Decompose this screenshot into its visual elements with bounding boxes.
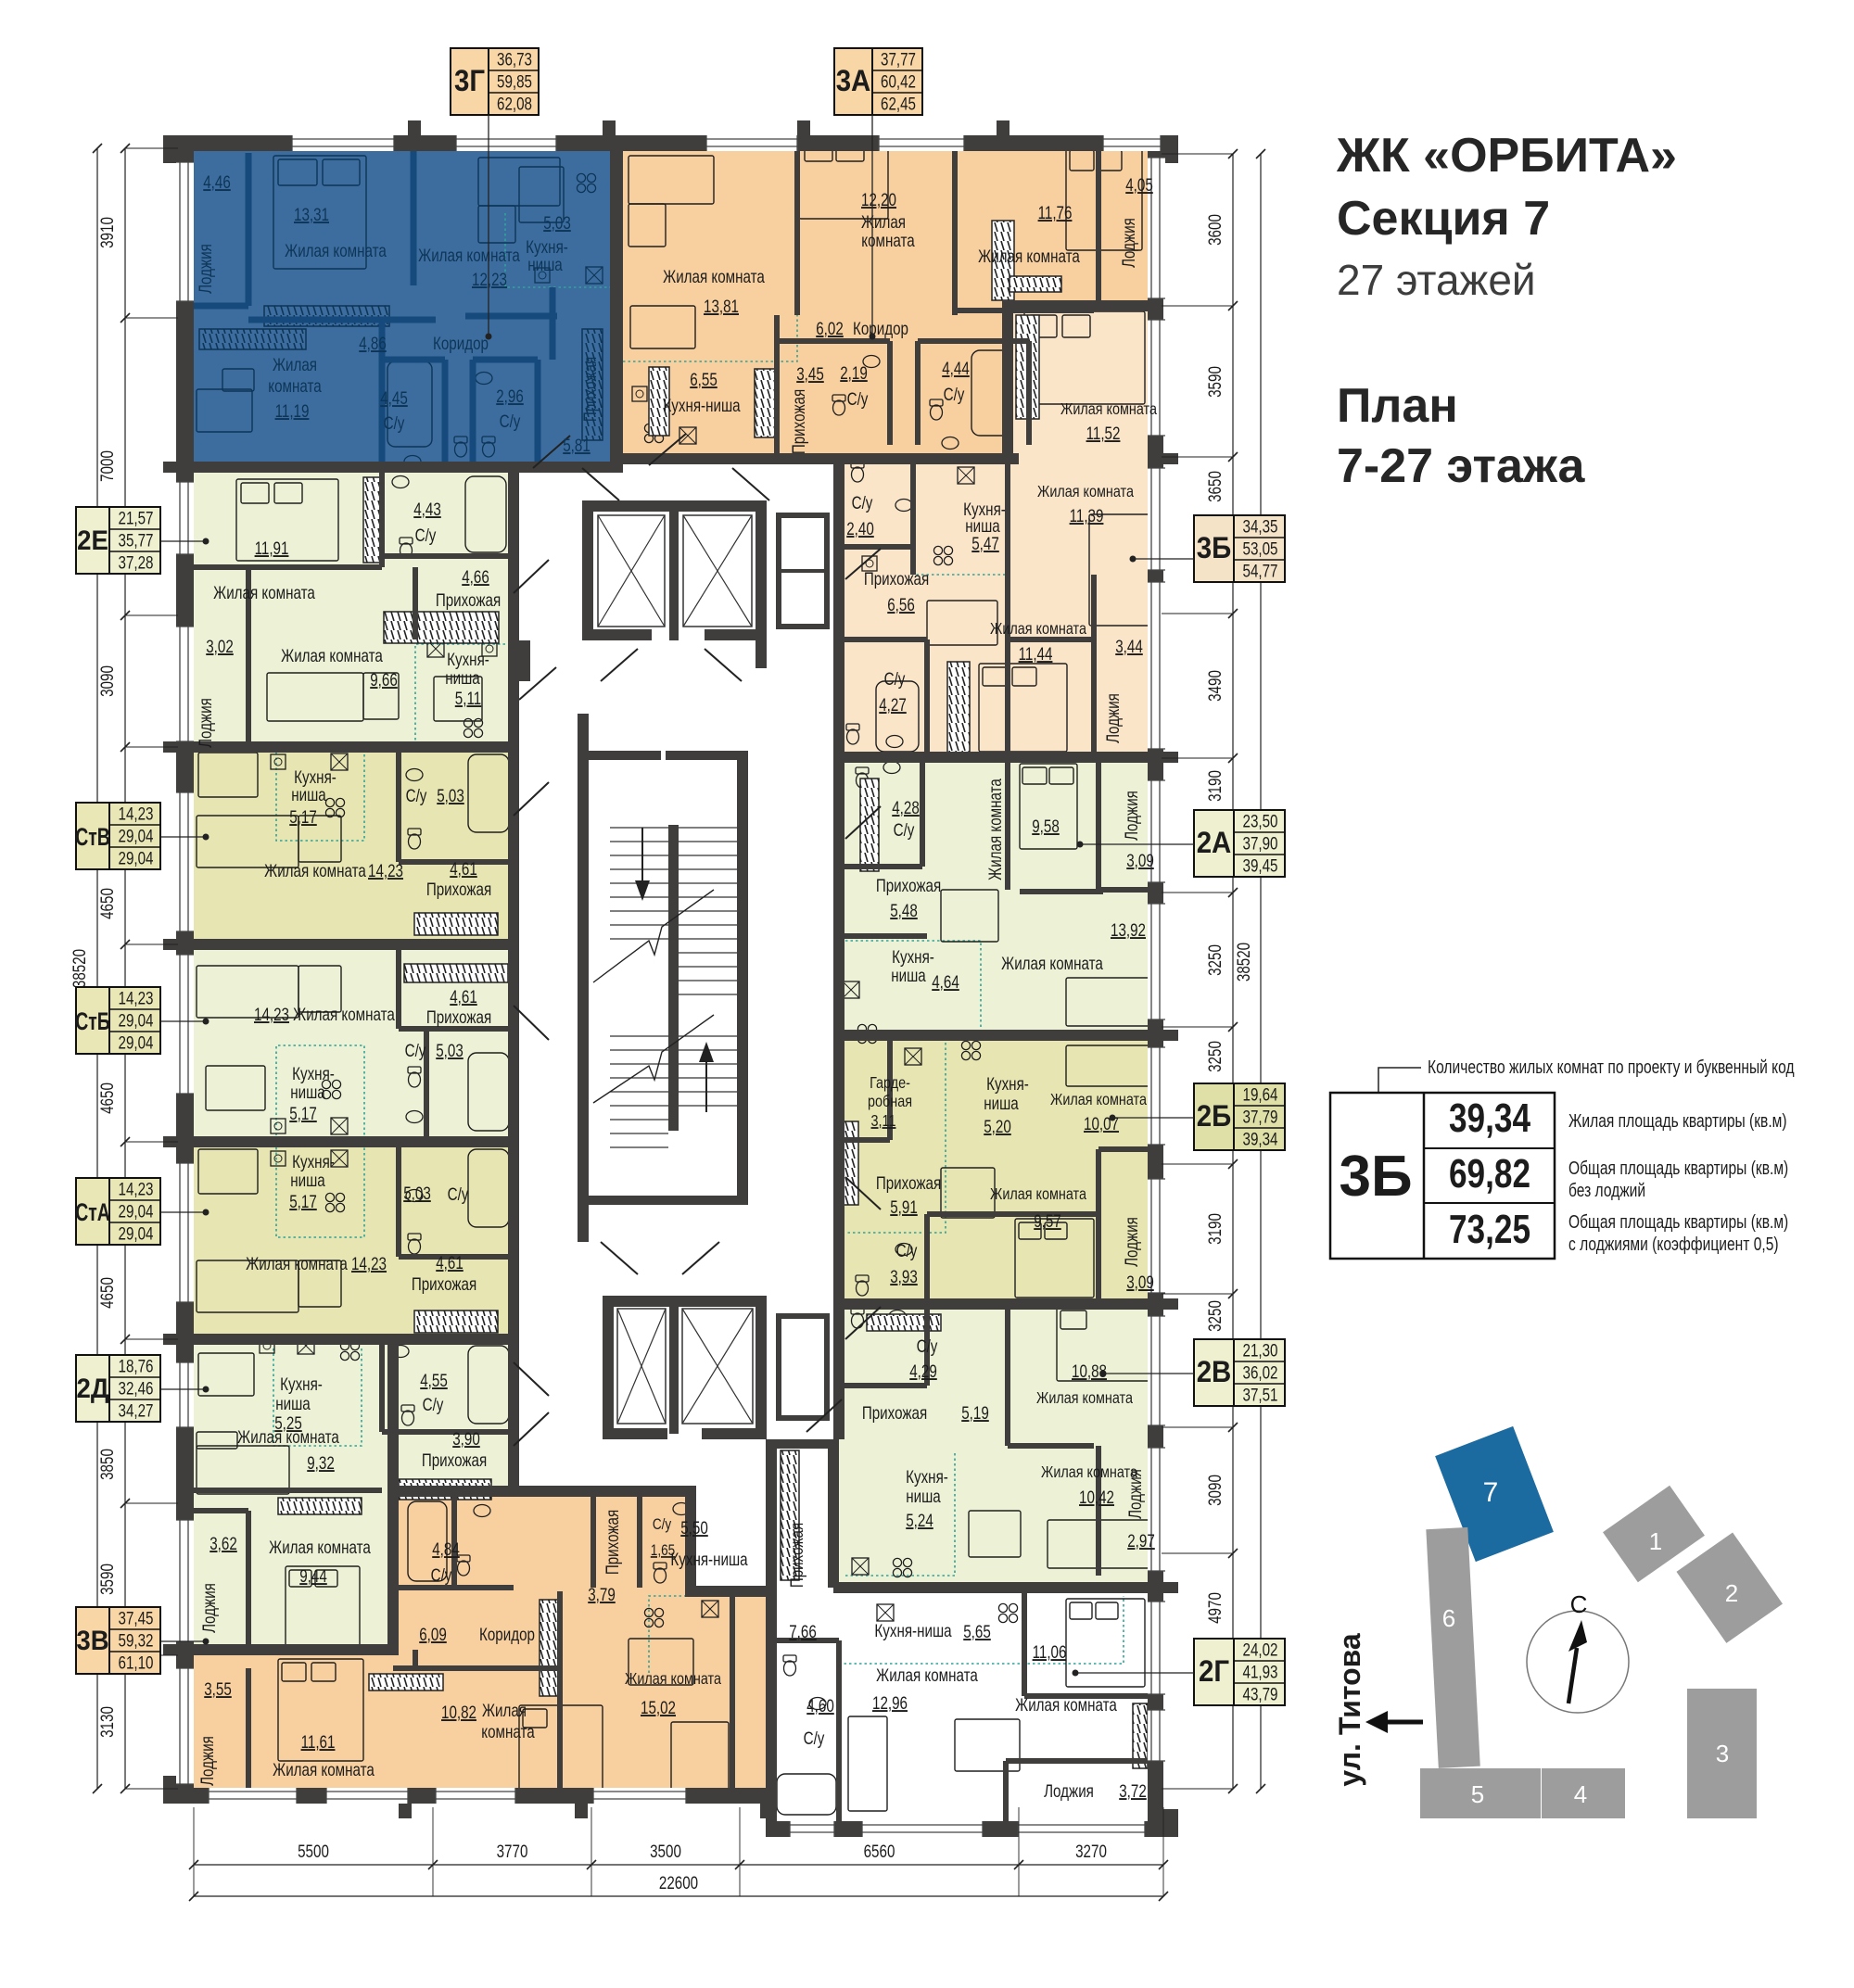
svg-text:4,86: 4,86	[359, 333, 387, 353]
svg-text:43,79: 43,79	[1242, 1684, 1277, 1704]
svg-text:Коридор: Коридор	[433, 333, 489, 353]
svg-text:13,81: 13,81	[704, 296, 739, 316]
svg-text:комната: комната	[481, 1721, 535, 1741]
svg-text:Коридор: Коридор	[479, 1624, 535, 1644]
svg-text:4,55: 4,55	[420, 1370, 448, 1390]
svg-text:4: 4	[1574, 1780, 1587, 1808]
svg-text:11,76: 11,76	[1038, 202, 1073, 222]
svg-text:с лоджиями (коэффициент 0,5): с лоджиями (коэффициент 0,5)	[1568, 1234, 1779, 1254]
svg-text:ниша: ниша	[906, 1486, 941, 1506]
svg-text:3Б: 3Б	[1197, 531, 1232, 564]
svg-text:Прихожая: Прихожая	[862, 1402, 927, 1423]
svg-text:4,64: 4,64	[932, 971, 959, 992]
svg-text:29,04: 29,04	[118, 1032, 153, 1053]
svg-text:Прихожая: Прихожая	[422, 1450, 487, 1470]
svg-text:7: 7	[1483, 1477, 1499, 1508]
svg-text:С/у: С/у	[500, 411, 521, 431]
svg-text:Прихожая: Прихожая	[426, 879, 491, 899]
svg-text:3590: 3590	[1204, 366, 1225, 398]
svg-text:62,45: 62,45	[881, 94, 916, 114]
svg-text:С/у: С/у	[917, 1336, 938, 1356]
svg-text:5,03: 5,03	[543, 212, 571, 233]
svg-text:Жилая: Жилая	[273, 354, 317, 374]
svg-text:3Б: 3Б	[1339, 1145, 1412, 1209]
svg-text:5,03: 5,03	[436, 1040, 463, 1060]
svg-text:3850: 3850	[96, 1449, 117, 1480]
svg-text:4,45: 4,45	[380, 387, 408, 408]
svg-text:13,92: 13,92	[1111, 919, 1146, 940]
svg-text:37,79: 37,79	[1242, 1107, 1277, 1127]
svg-text:Кухня-: Кухня-	[892, 946, 934, 967]
svg-text:21,57: 21,57	[118, 508, 153, 528]
svg-text:3,45: 3,45	[796, 363, 824, 384]
svg-text:15,02: 15,02	[641, 1697, 676, 1717]
svg-text:37,77: 37,77	[881, 49, 916, 70]
svg-text:ул. Титова: ул. Титова	[1333, 1633, 1366, 1787]
svg-text:6,56: 6,56	[887, 594, 915, 614]
svg-text:Жилая комната: Жилая комната	[1060, 400, 1158, 419]
svg-text:3,11: 3,11	[871, 1112, 896, 1131]
svg-text:Лоджия: Лоджия	[1044, 1780, 1094, 1801]
svg-text:Жилая: Жилая	[482, 1700, 527, 1720]
svg-text:Прихожая: Прихожая	[864, 568, 929, 589]
svg-text:ниша: ниша	[275, 1393, 311, 1413]
svg-text:Лоджия: Лоджия	[1121, 1217, 1141, 1267]
svg-text:комната: комната	[268, 375, 322, 396]
svg-text:9,57: 9,57	[1034, 1210, 1061, 1231]
svg-text:36,73: 36,73	[497, 49, 532, 70]
svg-text:3270: 3270	[1075, 1841, 1107, 1861]
svg-text:Секция 7: Секция 7	[1337, 192, 1550, 246]
svg-text:3,09: 3,09	[1126, 850, 1154, 870]
svg-text:СтВ: СтВ	[75, 823, 110, 851]
svg-text:34,35: 34,35	[1242, 516, 1277, 537]
svg-text:С/у: С/у	[847, 388, 869, 409]
svg-text:11,52: 11,52	[1086, 423, 1121, 443]
svg-text:14,23: 14,23	[254, 1004, 289, 1024]
svg-text:4,61: 4,61	[450, 858, 477, 879]
svg-text:3590: 3590	[96, 1564, 117, 1595]
svg-text:3250: 3250	[1204, 944, 1225, 976]
svg-text:Жилая: Жилая	[861, 211, 906, 232]
svg-text:14,23: 14,23	[118, 988, 153, 1008]
svg-text:3,55: 3,55	[204, 1678, 232, 1699]
svg-text:4,29: 4,29	[909, 1361, 937, 1381]
svg-text:Жилая комната: Жилая комната	[273, 1759, 375, 1779]
svg-text:6,09: 6,09	[419, 1624, 447, 1644]
svg-text:12,20: 12,20	[861, 189, 896, 209]
svg-text:Жилая комната: Жилая комната	[625, 1670, 722, 1689]
svg-text:Жилая комната: Жилая комната	[269, 1537, 371, 1557]
svg-text:3130: 3130	[96, 1706, 117, 1738]
svg-text:61,10: 61,10	[118, 1652, 153, 1673]
svg-text:Жилая комната: Жилая комната	[1015, 1694, 1117, 1715]
svg-text:3,90: 3,90	[452, 1428, 480, 1449]
svg-text:Жилая комната: Жилая комната	[1001, 953, 1103, 973]
svg-text:без лоджий: без лоджий	[1568, 1180, 1645, 1200]
svg-text:5,17: 5,17	[289, 806, 317, 827]
svg-text:4650: 4650	[96, 1083, 117, 1114]
svg-text:ЖК «ОРБИТА»: ЖК «ОРБИТА»	[1336, 129, 1677, 183]
svg-text:37,90: 37,90	[1242, 833, 1277, 854]
svg-text:2,40: 2,40	[846, 518, 874, 538]
svg-text:С/у: С/у	[852, 492, 873, 513]
svg-text:Кухня-: Кухня-	[292, 1151, 335, 1171]
svg-text:2,19: 2,19	[840, 362, 868, 383]
svg-text:Прихожая: Прихожая	[602, 1510, 622, 1575]
svg-text:Количество жилых комнат по про: Количество жилых комнат по проекту и бук…	[1428, 1057, 1795, 1077]
svg-text:3250: 3250	[1204, 1041, 1225, 1072]
svg-text:4,66: 4,66	[462, 566, 489, 587]
svg-text:41,93: 41,93	[1242, 1662, 1277, 1682]
svg-text:69,82: 69,82	[1449, 1151, 1530, 1197]
svg-text:3600: 3600	[1204, 214, 1225, 246]
svg-text:5,81: 5,81	[563, 435, 590, 455]
svg-text:53,05: 53,05	[1242, 538, 1277, 559]
svg-text:2,97: 2,97	[1127, 1530, 1155, 1551]
svg-text:5,03: 5,03	[437, 785, 464, 805]
svg-text:Жилая комната: Жилая комната	[1037, 483, 1135, 501]
svg-text:14,23: 14,23	[351, 1253, 387, 1273]
svg-text:Лоджия: Лоджия	[1121, 791, 1141, 841]
svg-text:37,45: 37,45	[118, 1608, 153, 1628]
svg-text:Прихожая: Прихожая	[786, 1523, 806, 1588]
svg-text:Лоджия: Лоджия	[195, 244, 215, 294]
svg-text:С/у: С/у	[415, 525, 437, 545]
svg-text:С/у: С/у	[406, 785, 427, 805]
svg-text:2А: 2А	[1197, 826, 1232, 859]
svg-text:С/у: С/у	[804, 1728, 825, 1748]
svg-text:2Г: 2Г	[1199, 1654, 1229, 1688]
svg-text:С/у: С/у	[448, 1184, 469, 1204]
svg-text:План: План	[1337, 379, 1458, 433]
svg-text:Жилая комната: Жилая комната	[984, 779, 1005, 880]
svg-text:3090: 3090	[1204, 1475, 1225, 1506]
svg-text:2В: 2В	[1197, 1355, 1232, 1388]
svg-text:3090: 3090	[96, 665, 117, 697]
svg-text:38520: 38520	[1233, 943, 1253, 981]
svg-text:5,47: 5,47	[971, 533, 999, 553]
svg-text:29,04: 29,04	[118, 1223, 153, 1244]
svg-text:Жилая комната: Жилая комната	[246, 1253, 348, 1273]
svg-text:Прихожая: Прихожая	[876, 1172, 941, 1193]
svg-text:9,66: 9,66	[370, 669, 398, 690]
svg-text:5: 5	[1471, 1780, 1484, 1808]
svg-text:59,85: 59,85	[497, 71, 532, 92]
svg-text:Прихожая: Прихожая	[426, 1007, 491, 1027]
svg-text:4970: 4970	[1204, 1592, 1225, 1624]
svg-text:Жилая комната: Жилая комната	[1041, 1463, 1138, 1482]
svg-text:4,43: 4,43	[413, 499, 441, 519]
svg-text:4,28: 4,28	[892, 797, 920, 817]
svg-text:4,27: 4,27	[879, 694, 907, 715]
svg-text:ниша: ниша	[984, 1093, 1019, 1113]
svg-text:19,64: 19,64	[1242, 1084, 1277, 1105]
svg-text:Лоджия: Лоджия	[1118, 218, 1138, 268]
svg-text:24,02: 24,02	[1242, 1640, 1277, 1660]
svg-text:Кухня-: Кухня-	[447, 649, 489, 669]
svg-text:3770: 3770	[497, 1841, 528, 1861]
svg-text:Гарде-: Гарде-	[870, 1074, 910, 1093]
svg-text:С/у: С/у	[423, 1394, 444, 1414]
svg-text:ниша: ниша	[290, 1170, 325, 1190]
svg-text:С/у: С/у	[405, 1040, 426, 1060]
svg-text:Жилая комната: Жилая комната	[418, 245, 520, 265]
svg-text:3: 3	[1716, 1740, 1729, 1767]
svg-text:ниша: ниша	[891, 965, 926, 985]
svg-text:Жилая комната: Жилая комната	[285, 240, 387, 260]
svg-text:4,84: 4,84	[432, 1538, 460, 1559]
svg-text:10,82: 10,82	[441, 1702, 476, 1722]
svg-text:3,02: 3,02	[206, 636, 234, 656]
svg-text:1: 1	[1649, 1527, 1662, 1555]
svg-text:60,42: 60,42	[881, 71, 916, 92]
svg-text:3,79: 3,79	[588, 1584, 616, 1604]
svg-text:5,48: 5,48	[890, 900, 918, 920]
svg-text:Жилая комната: Жилая комната	[990, 1185, 1087, 1204]
svg-text:3190: 3190	[1204, 1213, 1225, 1245]
svg-text:11,06: 11,06	[1033, 1641, 1067, 1662]
svg-text:5,17: 5,17	[289, 1191, 317, 1211]
svg-text:3,93: 3,93	[890, 1266, 918, 1286]
svg-text:38520: 38520	[69, 949, 89, 988]
svg-text:С/у: С/у	[944, 384, 965, 404]
svg-text:3,62: 3,62	[210, 1533, 237, 1553]
svg-text:59,32: 59,32	[118, 1630, 153, 1651]
svg-text:37,51: 37,51	[1242, 1385, 1277, 1405]
svg-text:22600: 22600	[659, 1872, 698, 1893]
svg-text:Жилая комната: Жилая комната	[264, 860, 366, 880]
svg-text:ниша: ниша	[290, 1082, 325, 1102]
svg-text:Кухня-ниша: Кухня-ниша	[670, 1549, 748, 1569]
svg-text:Прихожая: Прихожая	[436, 589, 501, 610]
svg-text:7,66: 7,66	[789, 1621, 817, 1641]
svg-text:ниша: ниша	[527, 254, 563, 274]
svg-text:С/у: С/у	[431, 1564, 452, 1585]
svg-text:14,23: 14,23	[118, 804, 153, 824]
svg-text:18,76: 18,76	[118, 1356, 153, 1376]
svg-text:4,44: 4,44	[942, 358, 970, 378]
svg-text:Лоджия: Лоджия	[198, 1583, 219, 1633]
svg-text:5500: 5500	[298, 1841, 329, 1861]
svg-text:7-27 этажа: 7-27 этажа	[1337, 439, 1585, 493]
svg-text:Жилая комната: Жилая комната	[978, 246, 1080, 266]
svg-text:С/у: С/у	[896, 1240, 918, 1260]
svg-text:3А: 3А	[836, 64, 871, 97]
svg-text:СтА: СтА	[75, 1198, 110, 1226]
svg-text:С/у: С/у	[894, 819, 915, 840]
svg-text:Лоджия: Лоджия	[1102, 693, 1123, 743]
svg-text:Жилая комната: Жилая комната	[1050, 1091, 1148, 1109]
svg-text:11,19: 11,19	[275, 400, 310, 421]
svg-text:3Г: 3Г	[454, 64, 485, 97]
svg-text:Жилая комната: Жилая комната	[1036, 1389, 1134, 1408]
svg-text:Общая площадь квартиры (кв.м): Общая площадь квартиры (кв.м)	[1568, 1211, 1788, 1232]
svg-text:Жилая комната: Жилая комната	[237, 1426, 339, 1447]
svg-text:62,08: 62,08	[497, 94, 532, 114]
svg-text:39,34: 39,34	[1449, 1095, 1530, 1141]
svg-text:23,50: 23,50	[1242, 811, 1277, 831]
svg-text:11,61: 11,61	[301, 1731, 336, 1752]
svg-text:11,91: 11,91	[255, 538, 289, 558]
svg-text:29,04: 29,04	[118, 1010, 153, 1031]
svg-text:34,27: 34,27	[118, 1400, 153, 1421]
svg-text:2Е: 2Е	[77, 525, 108, 556]
svg-text:4,61: 4,61	[450, 986, 477, 1007]
svg-text:робная: робная	[868, 1093, 912, 1111]
svg-text:37,28: 37,28	[118, 552, 153, 573]
svg-text:14,23: 14,23	[118, 1179, 153, 1199]
svg-text:3650: 3650	[1204, 471, 1225, 502]
svg-text:3910: 3910	[96, 217, 117, 248]
svg-text:2Б: 2Б	[1197, 1099, 1232, 1133]
svg-text:32,46: 32,46	[118, 1378, 153, 1399]
svg-text:73,25: 73,25	[1449, 1207, 1530, 1252]
svg-text:3,44: 3,44	[1115, 636, 1143, 656]
svg-text:54,77: 54,77	[1242, 561, 1277, 581]
svg-text:Жилая комната: Жилая комната	[876, 1665, 978, 1685]
svg-text:ниша: ниша	[291, 784, 326, 804]
svg-text:4,05: 4,05	[1125, 174, 1153, 195]
svg-text:3500: 3500	[650, 1841, 681, 1861]
svg-text:9,44: 9,44	[299, 1565, 327, 1586]
svg-text:Коридор: Коридор	[853, 318, 908, 338]
svg-text:4650: 4650	[96, 888, 117, 919]
svg-text:Жилая площадь квартиры (кв.м): Жилая площадь квартиры (кв.м)	[1568, 1110, 1787, 1131]
svg-text:Кухня-ниша: Кухня-ниша	[874, 1620, 952, 1640]
svg-text:4,60: 4,60	[806, 1695, 834, 1716]
svg-text:С/у: С/у	[384, 412, 405, 433]
svg-text:6560: 6560	[864, 1841, 895, 1861]
svg-text:36,02: 36,02	[1242, 1362, 1277, 1383]
svg-text:10,42: 10,42	[1079, 1487, 1114, 1507]
svg-text:Кухня-: Кухня-	[292, 1063, 335, 1083]
svg-text:5,11: 5,11	[455, 688, 481, 708]
svg-text:3190: 3190	[1204, 770, 1225, 802]
svg-text:11,44: 11,44	[1019, 643, 1053, 664]
svg-text:Прихожая: Прихожая	[876, 875, 941, 895]
svg-text:5,24: 5,24	[906, 1510, 933, 1530]
svg-text:14,23: 14,23	[368, 860, 403, 880]
svg-text:Общая площадь квартиры (кв.м): Общая площадь квартиры (кв.м)	[1568, 1158, 1788, 1178]
svg-text:29,04: 29,04	[118, 848, 153, 868]
svg-text:6,02: 6,02	[816, 318, 844, 338]
svg-text:Прихожая: Прихожая	[788, 389, 808, 454]
svg-text:29,04: 29,04	[118, 1201, 153, 1222]
svg-text:5,17: 5,17	[289, 1103, 317, 1123]
svg-text:Кухня-: Кухня-	[280, 1374, 323, 1394]
svg-text:комната: комната	[861, 230, 915, 250]
svg-text:5,03: 5,03	[403, 1183, 431, 1203]
svg-text:3,09: 3,09	[1126, 1272, 1154, 1292]
svg-text:11,39: 11,39	[1070, 505, 1104, 525]
svg-text:9,58: 9,58	[1032, 816, 1060, 836]
svg-text:Кухня-ниша: Кухня-ниша	[663, 395, 741, 415]
svg-text:3В: 3В	[76, 1626, 108, 1656]
svg-text:5,19: 5,19	[961, 1402, 989, 1423]
svg-text:СтБ: СтБ	[75, 1007, 110, 1035]
svg-text:39,45: 39,45	[1242, 855, 1277, 876]
svg-text:29,04: 29,04	[118, 826, 153, 846]
svg-text:7000: 7000	[96, 450, 117, 482]
svg-text:Прихожая: Прихожая	[579, 357, 600, 422]
svg-text:Прихожая: Прихожая	[412, 1273, 476, 1294]
svg-text:21,30: 21,30	[1242, 1340, 1277, 1361]
svg-text:С/у: С/у	[884, 668, 906, 689]
svg-text:Лоджия: Лоджия	[195, 698, 215, 748]
svg-text:35,77: 35,77	[118, 530, 153, 551]
svg-text:12,23: 12,23	[472, 269, 507, 289]
svg-text:С/у: С/у	[653, 1516, 672, 1534]
svg-text:27 этажей: 27 этажей	[1337, 256, 1536, 304]
svg-text:4,46: 4,46	[203, 171, 231, 192]
svg-text:2: 2	[1725, 1579, 1738, 1607]
svg-text:6,55: 6,55	[690, 369, 717, 389]
svg-text:6: 6	[1442, 1604, 1455, 1632]
svg-text:5,20: 5,20	[984, 1116, 1011, 1136]
svg-text:9,32: 9,32	[307, 1452, 335, 1473]
svg-text:2Д: 2Д	[76, 1374, 108, 1404]
svg-text:С: С	[1570, 1590, 1588, 1618]
svg-text:3,72: 3,72	[1119, 1780, 1147, 1801]
svg-text:Жилая комната: Жилая комната	[293, 1004, 395, 1024]
svg-text:3250: 3250	[1204, 1300, 1225, 1332]
svg-text:Жилая комната: Жилая комната	[213, 582, 315, 602]
svg-text:2,96: 2,96	[496, 386, 524, 406]
svg-text:5,65: 5,65	[963, 1621, 991, 1641]
svg-text:Жилая комната: Жилая комната	[281, 645, 383, 665]
svg-text:Жилая комната: Жилая комната	[663, 266, 765, 286]
svg-text:3490: 3490	[1204, 670, 1225, 702]
svg-text:5,50: 5,50	[680, 1517, 708, 1538]
svg-text:Лоджия: Лоджия	[1124, 1469, 1145, 1519]
svg-text:Кухня-: Кухня-	[986, 1073, 1029, 1094]
svg-text:4,61: 4,61	[436, 1252, 463, 1273]
svg-text:Кухня-: Кухня-	[906, 1466, 948, 1487]
svg-text:Лоджия: Лоджия	[197, 1736, 217, 1786]
svg-text:Жилая комната: Жилая комната	[990, 620, 1087, 639]
svg-text:39,34: 39,34	[1242, 1129, 1277, 1149]
svg-text:12,96: 12,96	[872, 1692, 908, 1713]
svg-text:4650: 4650	[96, 1277, 117, 1309]
svg-text:ниша: ниша	[445, 667, 480, 688]
svg-text:13,31: 13,31	[294, 204, 329, 224]
svg-text:5,91: 5,91	[890, 1197, 918, 1217]
